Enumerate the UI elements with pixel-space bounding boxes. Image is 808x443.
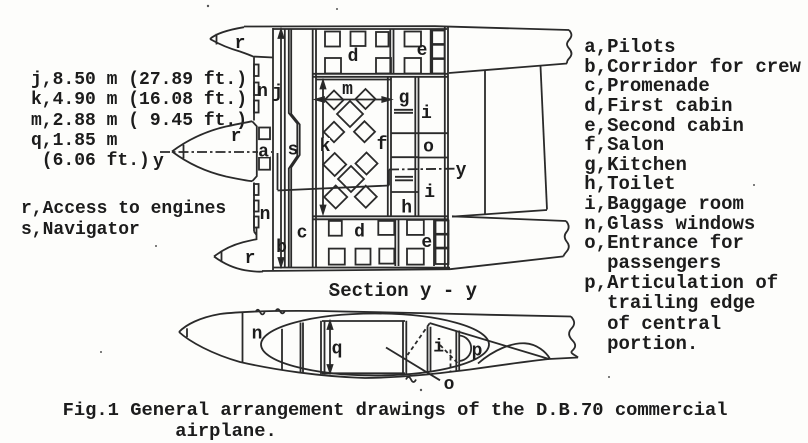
svg-text:r: r	[235, 34, 246, 54]
svg-text:o: o	[423, 138, 434, 158]
svg-text:b: b	[276, 238, 287, 258]
svg-text:s: s	[288, 141, 299, 161]
svg-text:e: e	[417, 41, 428, 61]
svg-text:q: q	[332, 340, 343, 360]
svg-text:n: n	[257, 82, 268, 102]
svg-text:y: y	[456, 161, 467, 181]
svg-text:o: o	[444, 375, 455, 395]
svg-text:p: p	[472, 342, 483, 362]
svg-text:h: h	[401, 199, 412, 219]
svg-text:a: a	[258, 143, 269, 163]
svg-text:n: n	[252, 325, 263, 345]
svg-text:r: r	[231, 127, 242, 147]
svg-text:m: m	[342, 80, 353, 100]
svg-text:r: r	[245, 249, 256, 269]
svg-text:d: d	[354, 223, 365, 243]
svg-text:e: e	[421, 233, 432, 253]
svg-text:f: f	[377, 135, 388, 155]
svg-text:i: i	[421, 104, 432, 124]
svg-text:i: i	[433, 338, 444, 358]
svg-text:c: c	[297, 224, 308, 244]
svg-text:d: d	[348, 47, 359, 67]
svg-text:k: k	[320, 137, 331, 157]
svg-text:i: i	[424, 183, 435, 203]
svg-text:g: g	[399, 89, 410, 109]
svg-text:j: j	[272, 83, 283, 103]
svg-text:n: n	[260, 205, 271, 225]
